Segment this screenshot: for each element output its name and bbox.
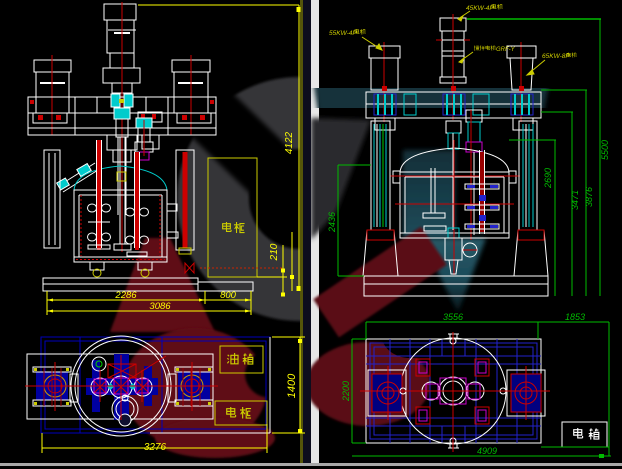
svg-text:3276: 3276 (144, 442, 167, 453)
svg-text:3876: 3876 (584, 187, 594, 207)
svg-text:4909: 4909 (477, 446, 497, 456)
svg-text:GRF-Y: GRF-Y (496, 47, 516, 53)
svg-text:2436: 2436 (327, 212, 337, 233)
svg-text:1853: 1853 (565, 312, 585, 322)
svg-text:2690: 2690 (543, 168, 553, 189)
svg-text:65KW-8P: 65KW-8P (542, 53, 570, 60)
svg-text:210: 210 (269, 243, 280, 261)
svg-text:4122: 4122 (284, 131, 295, 154)
svg-text:2286: 2286 (114, 290, 137, 301)
svg-text:55KW-4P: 55KW-4P (329, 30, 357, 37)
svg-text:3471: 3471 (570, 190, 580, 210)
svg-text:5500: 5500 (600, 140, 610, 160)
svg-text:1400: 1400 (286, 373, 298, 398)
svg-text:2200: 2200 (341, 381, 351, 402)
svg-text:3086: 3086 (149, 301, 171, 312)
svg-text:3556: 3556 (443, 312, 463, 322)
svg-text:800: 800 (220, 290, 237, 301)
svg-text:45KW-4P: 45KW-4P (466, 5, 494, 12)
